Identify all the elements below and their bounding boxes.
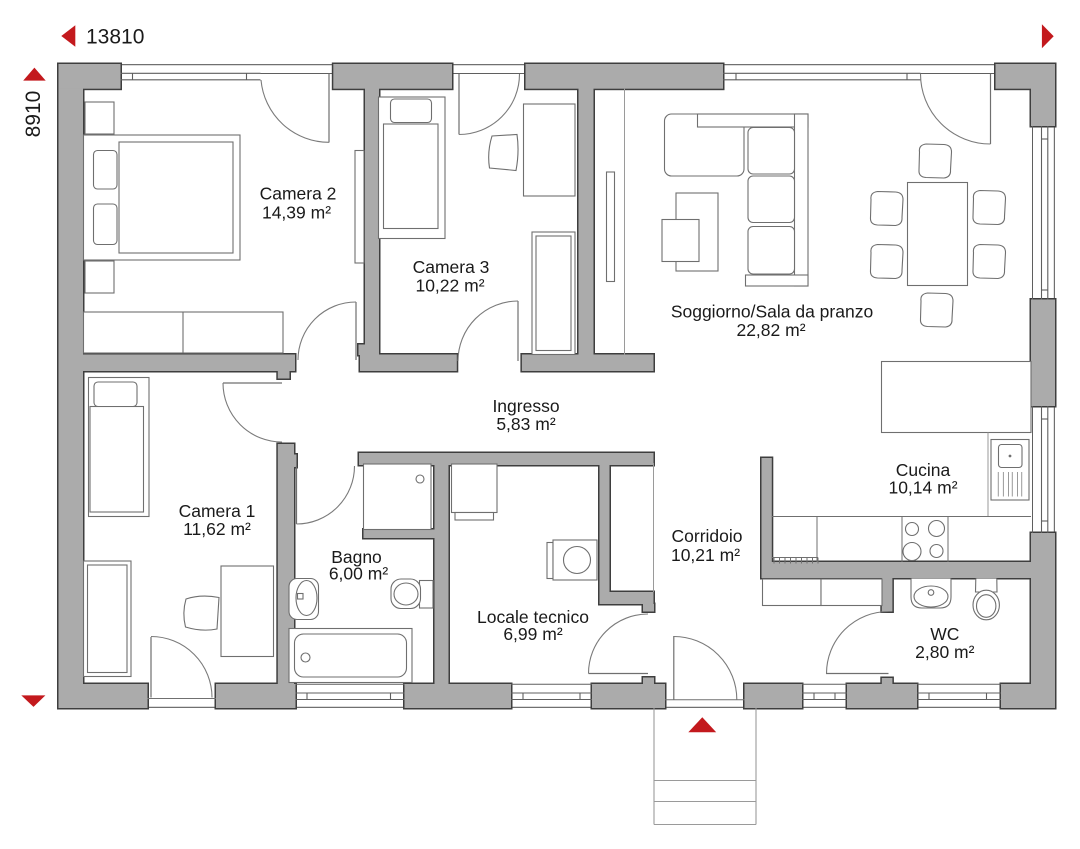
svg-text:Camera 1: Camera 1 — [179, 501, 256, 521]
svg-text:2,80 m²: 2,80 m² — [915, 642, 974, 662]
svg-text:10,14 m²: 10,14 m² — [888, 478, 957, 498]
svg-text:10,21 m²: 10,21 m² — [671, 545, 740, 565]
svg-text:Soggiorno/Sala da pranzo: Soggiorno/Sala da pranzo — [671, 302, 873, 322]
svg-text:5,83 m²: 5,83 m² — [496, 414, 555, 434]
svg-text:6,99 m²: 6,99 m² — [503, 624, 562, 644]
svg-text:22,82 m²: 22,82 m² — [736, 320, 805, 340]
svg-text:Ingresso: Ingresso — [492, 396, 559, 416]
svg-text:Corridoio: Corridoio — [672, 526, 743, 546]
svg-text:14,39 m²: 14,39 m² — [262, 203, 331, 223]
svg-text:Camera 3: Camera 3 — [413, 257, 490, 277]
svg-text:8910: 8910 — [22, 91, 45, 138]
svg-text:WC: WC — [930, 624, 959, 644]
svg-text:10,22 m²: 10,22 m² — [415, 276, 484, 296]
svg-text:11,62 m²: 11,62 m² — [183, 519, 251, 539]
svg-text:Camera 2: Camera 2 — [260, 184, 337, 204]
svg-text:6,00 m²: 6,00 m² — [329, 564, 388, 584]
svg-text:13810: 13810 — [86, 26, 144, 49]
